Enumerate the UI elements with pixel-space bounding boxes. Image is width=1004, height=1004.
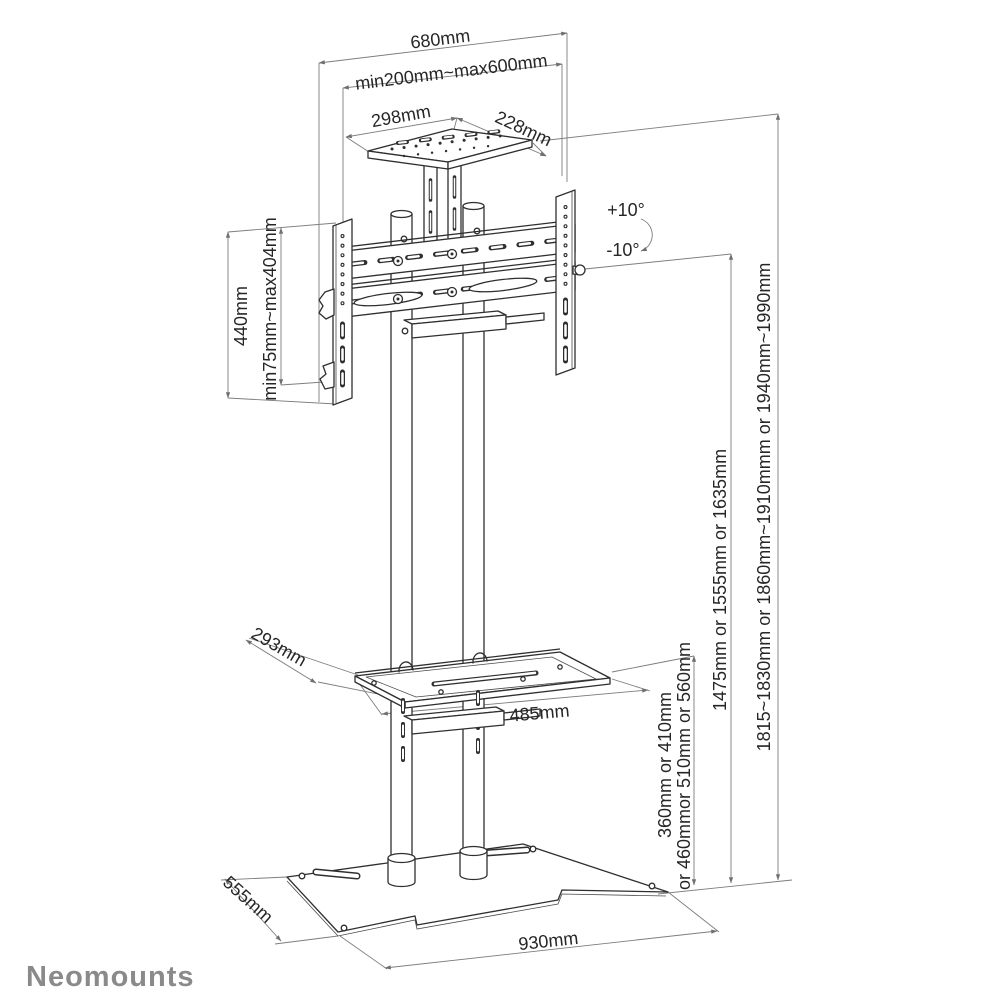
tray-width-label: 298mm xyxy=(370,101,433,131)
tilt-lock-left xyxy=(319,289,334,389)
tilt-down-label: -10° xyxy=(606,240,639,260)
top-tray xyxy=(368,129,532,169)
tilt-knob-right xyxy=(573,265,585,275)
overall-width-label: 680mm xyxy=(409,25,471,52)
pole-right xyxy=(460,203,487,880)
tilt-up-label: +10° xyxy=(607,200,645,220)
shelf-height-label-2: or 460mmor 510mm or 560mm xyxy=(674,642,694,890)
vesa-height-label: min75mm~max404mm xyxy=(260,217,280,401)
shelf-height-label-1: 360mm or 410mm xyxy=(655,692,675,838)
dimension-lines xyxy=(221,33,792,969)
dimension-labels: 680mm min200mm~max600mm 298mm 228mm +10°… xyxy=(219,25,774,954)
technical-drawing-page: 680mm min200mm~max600mm 298mm 228mm +10°… xyxy=(0,0,1004,1004)
bracket-height-label: 440mm xyxy=(231,286,251,346)
shelf-width-label: 485mm xyxy=(509,700,571,725)
vesa-width-label: min200mm~max600mm xyxy=(354,50,549,93)
brand-logo: Neomounts xyxy=(26,961,195,993)
bracket-right-plate xyxy=(556,190,575,375)
pole-height-label: 1475mm or 1555mm or 1635mm xyxy=(710,449,730,711)
base-depth-label: 555mm xyxy=(219,872,277,927)
total-height-label: 1815~1830mm or 1860mm~1910mmm or 1940mm~… xyxy=(754,263,774,752)
base-width-label: 930mm xyxy=(517,928,579,954)
bracket-left-plate xyxy=(333,219,352,405)
tv-floor-stand-diagram: 680mm min200mm~max600mm 298mm 228mm +10°… xyxy=(0,0,1004,1004)
tilt-arc-arrow xyxy=(641,219,652,251)
